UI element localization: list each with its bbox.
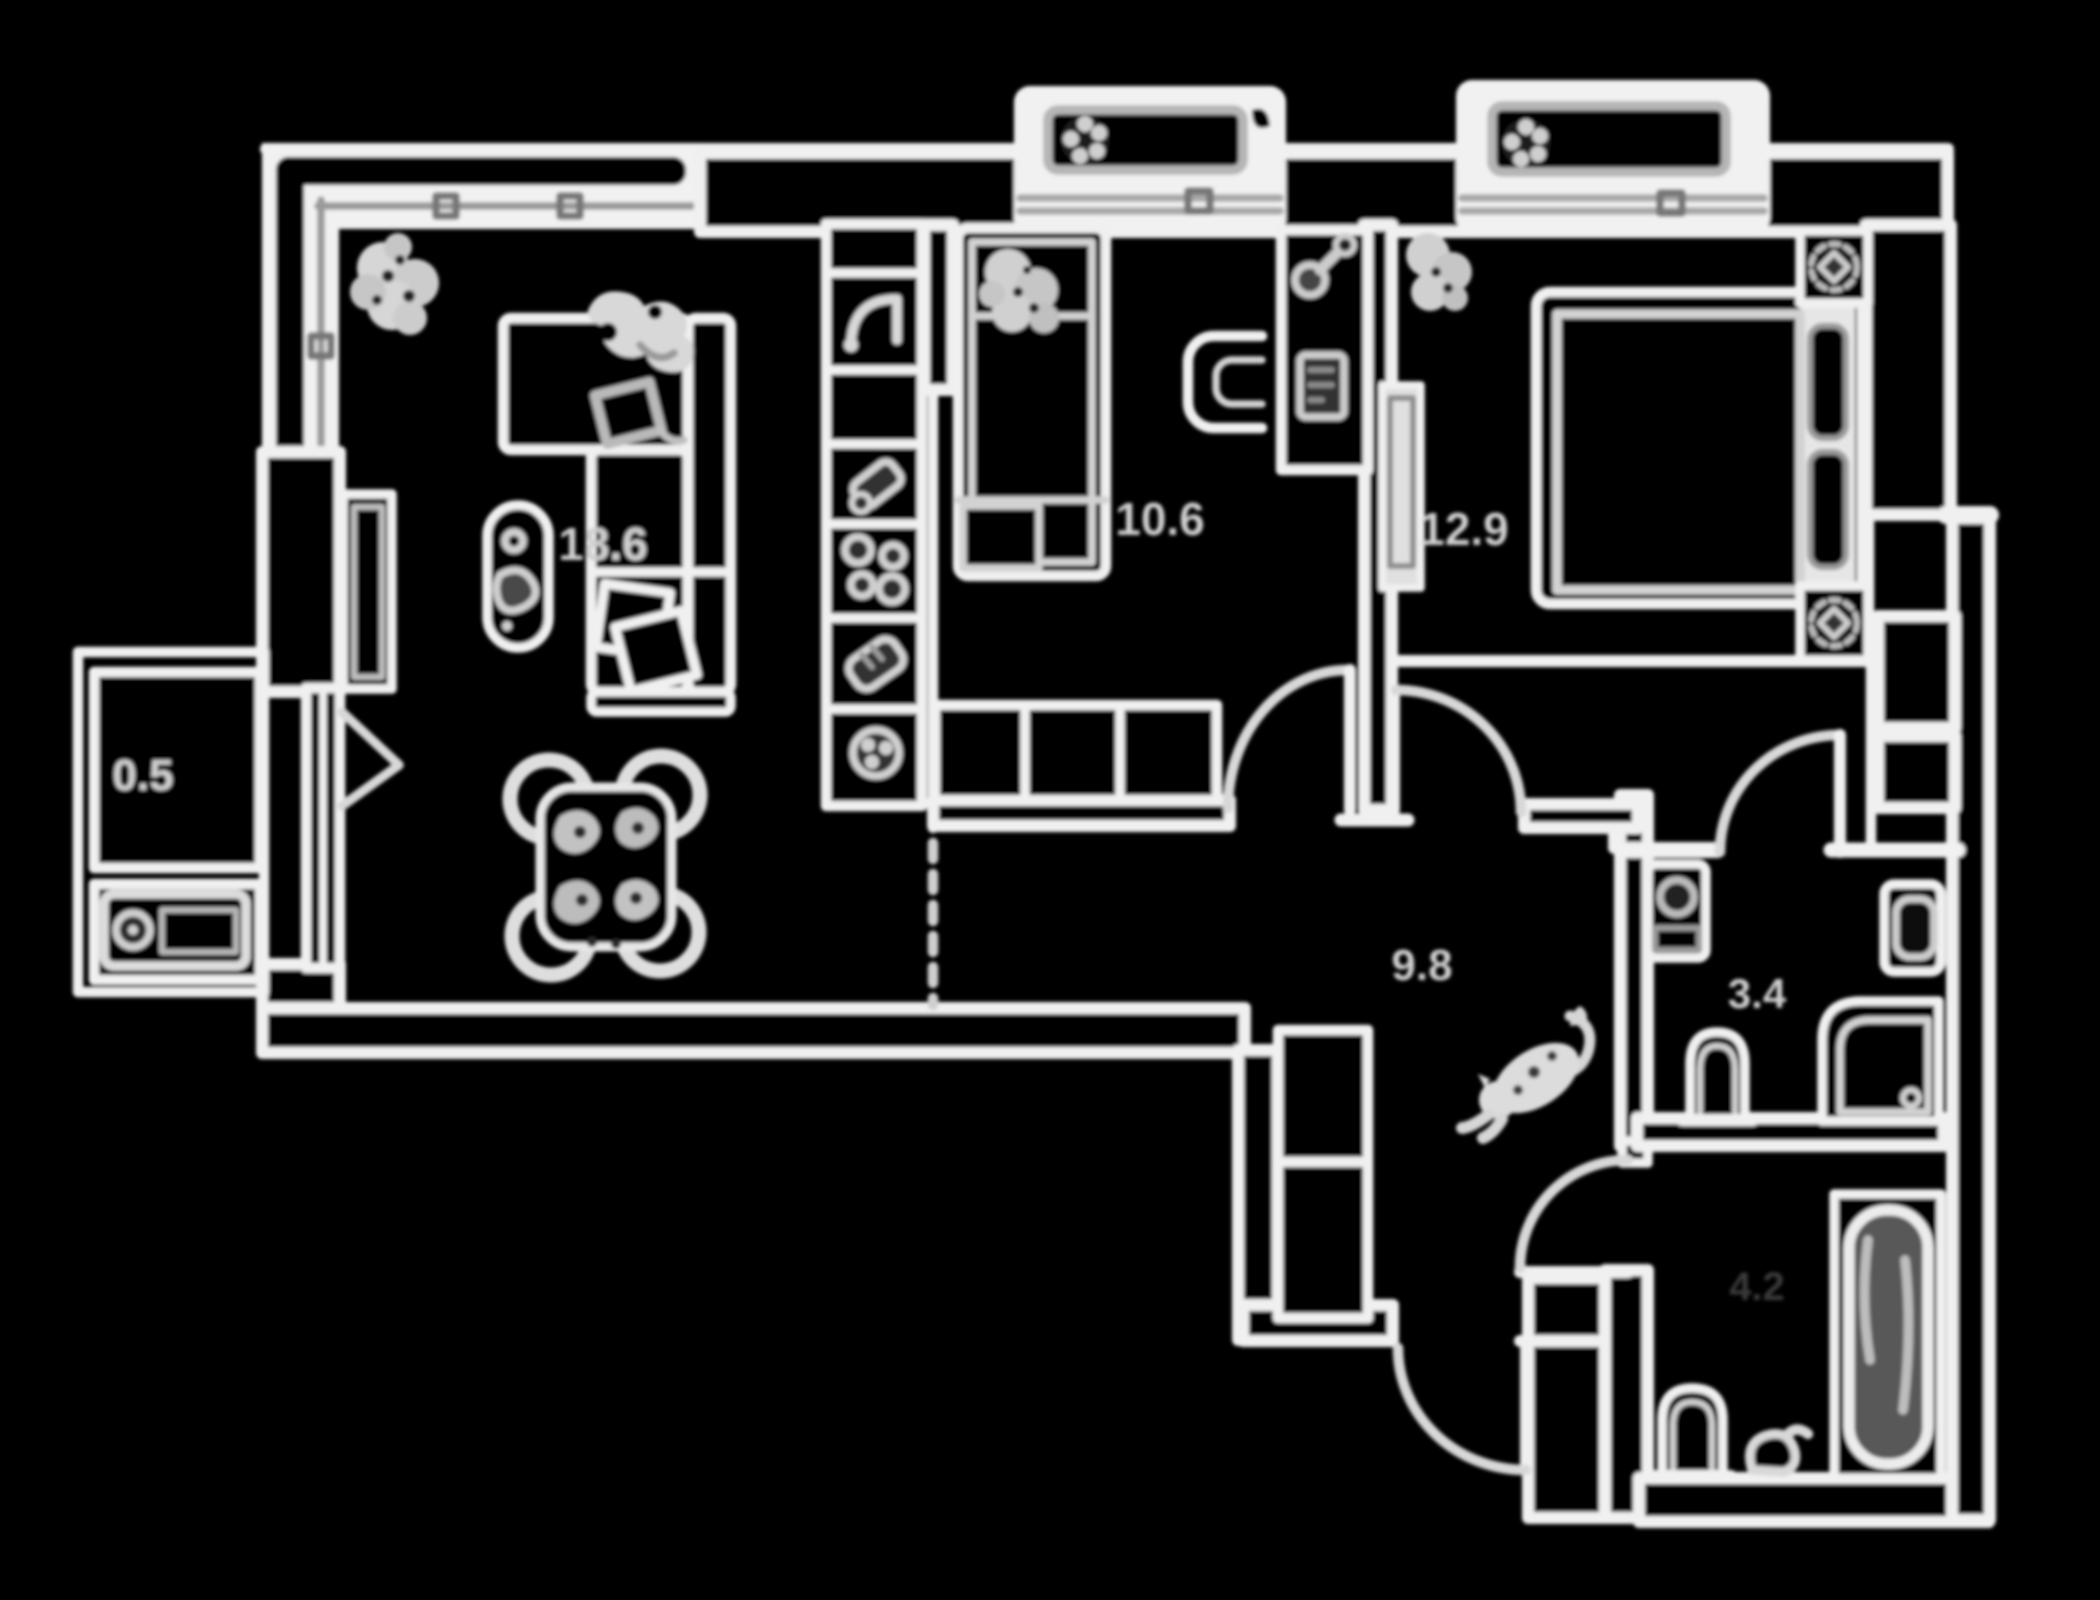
svg-text:3.4: 3.4 (1728, 970, 1787, 1017)
svg-text:9.8: 9.8 (1391, 941, 1452, 990)
svg-text:12.9: 12.9 (1419, 503, 1509, 555)
svg-text:10.6: 10.6 (1115, 493, 1205, 545)
svg-text:0.5: 0.5 (112, 751, 173, 800)
svg-text:18.6: 18.6 (558, 518, 648, 570)
svg-text:4.2: 4.2 (1729, 1265, 1785, 1309)
